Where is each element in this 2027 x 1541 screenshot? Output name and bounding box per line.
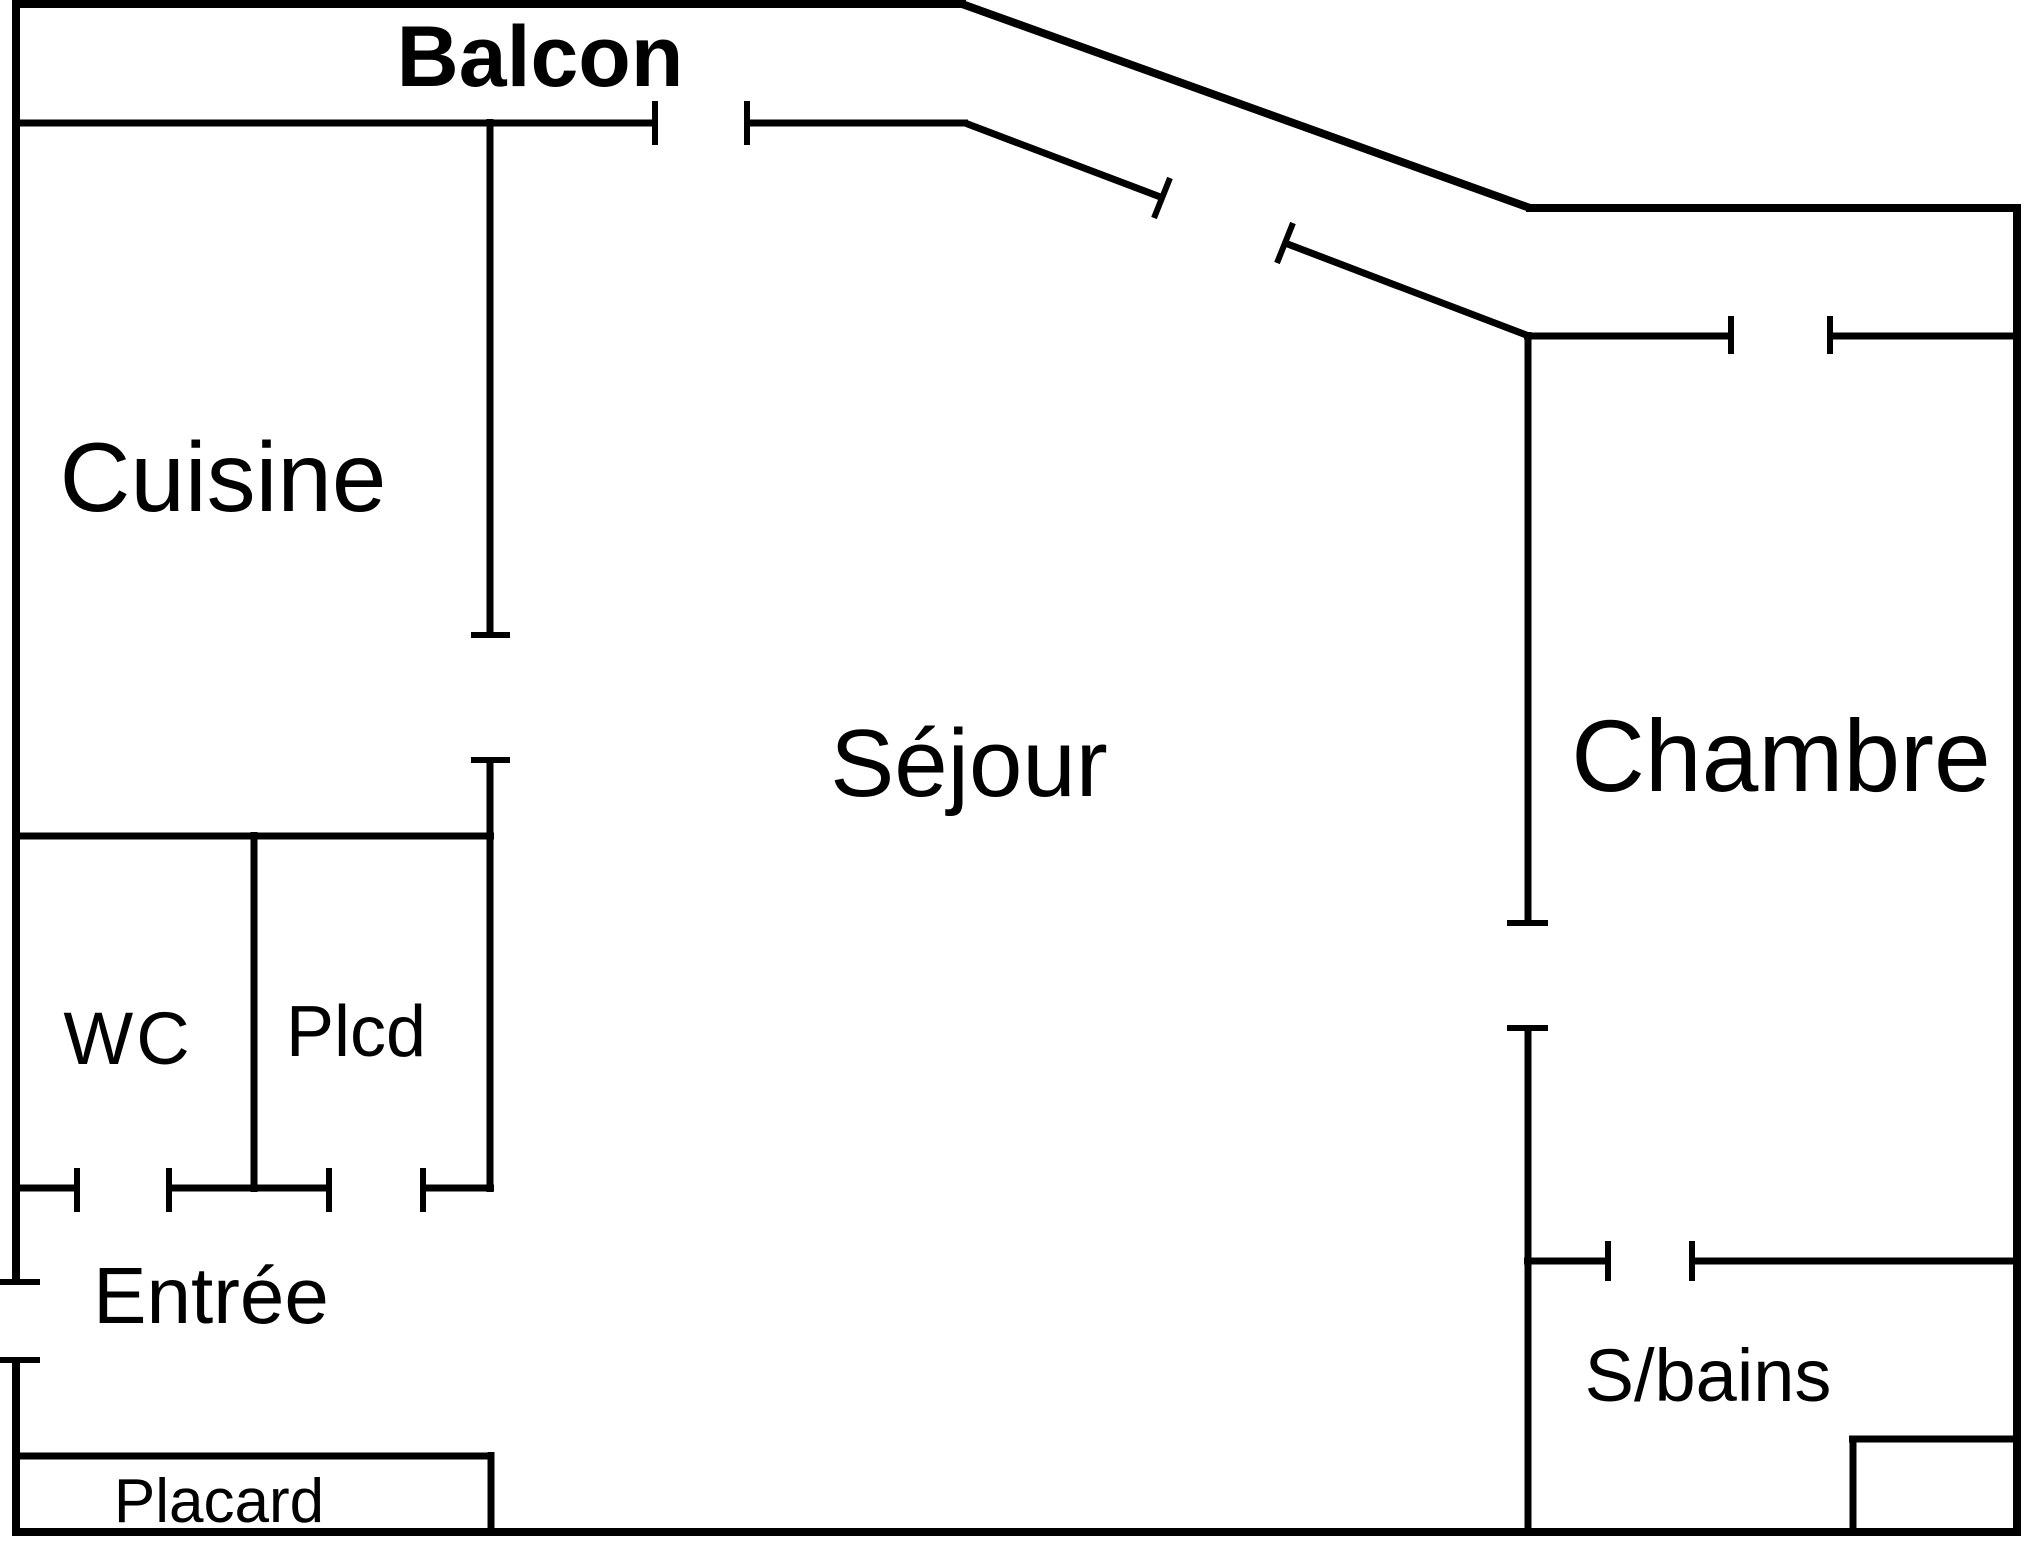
room-label-cuisine: Cuisine (60, 428, 387, 526)
room-label-wc: WC (63, 1002, 192, 1076)
room-label-placard: Placard (114, 1471, 324, 1533)
floor-plan: Balcon Cuisine Séjour Chambre WC Plcd En… (0, 0, 2027, 1541)
room-label-balcon: Balcon (397, 14, 684, 100)
room-label-entree: Entrée (93, 1256, 329, 1336)
room-label-chambre: Chambre (1571, 705, 1991, 807)
room-label-plcd: Plcd (286, 996, 426, 1068)
wall-balcony-diagonal-1 (965, 123, 1163, 198)
room-label-sejour: Séjour (830, 716, 1108, 812)
wall-balcony-diagonal-2 (1285, 243, 1529, 336)
wall-outer-top-diagonal (962, 4, 1530, 208)
room-label-sbains: S/bains (1585, 1339, 1832, 1413)
